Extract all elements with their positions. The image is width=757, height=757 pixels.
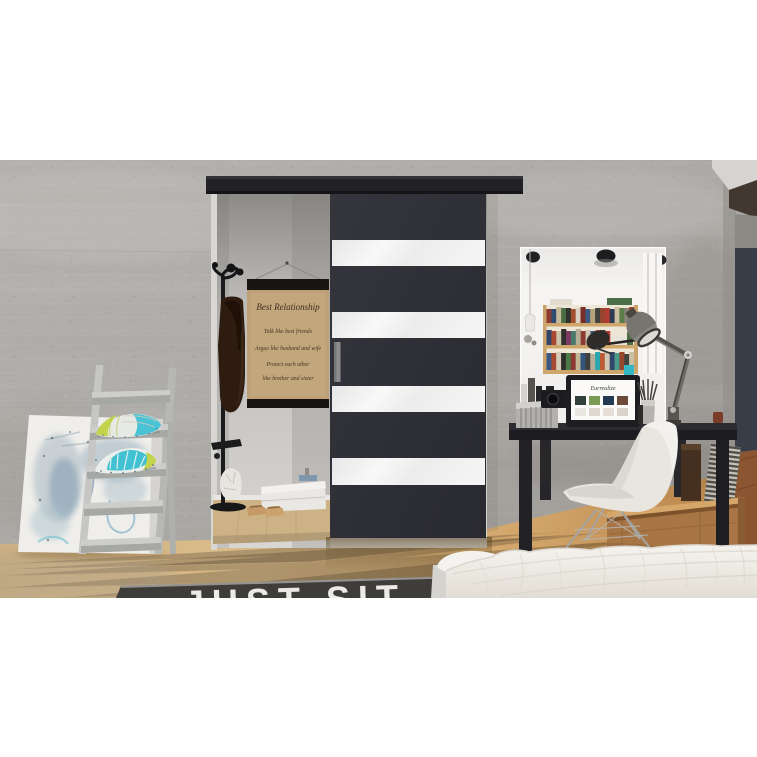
svg-text:Best Relationship: Best Relationship <box>256 302 320 312</box>
svg-text:Protect each other: Protect each other <box>266 362 311 368</box>
svg-text:like brother and sister: like brother and sister <box>262 376 314 382</box>
svg-text:Eurrealize: Eurrealize <box>589 386 615 392</box>
svg-text:Talk like best friends: Talk like best friends <box>264 328 313 335</box>
svg-text:Argue like husband and wife: Argue like husband and wife <box>254 345 322 352</box>
